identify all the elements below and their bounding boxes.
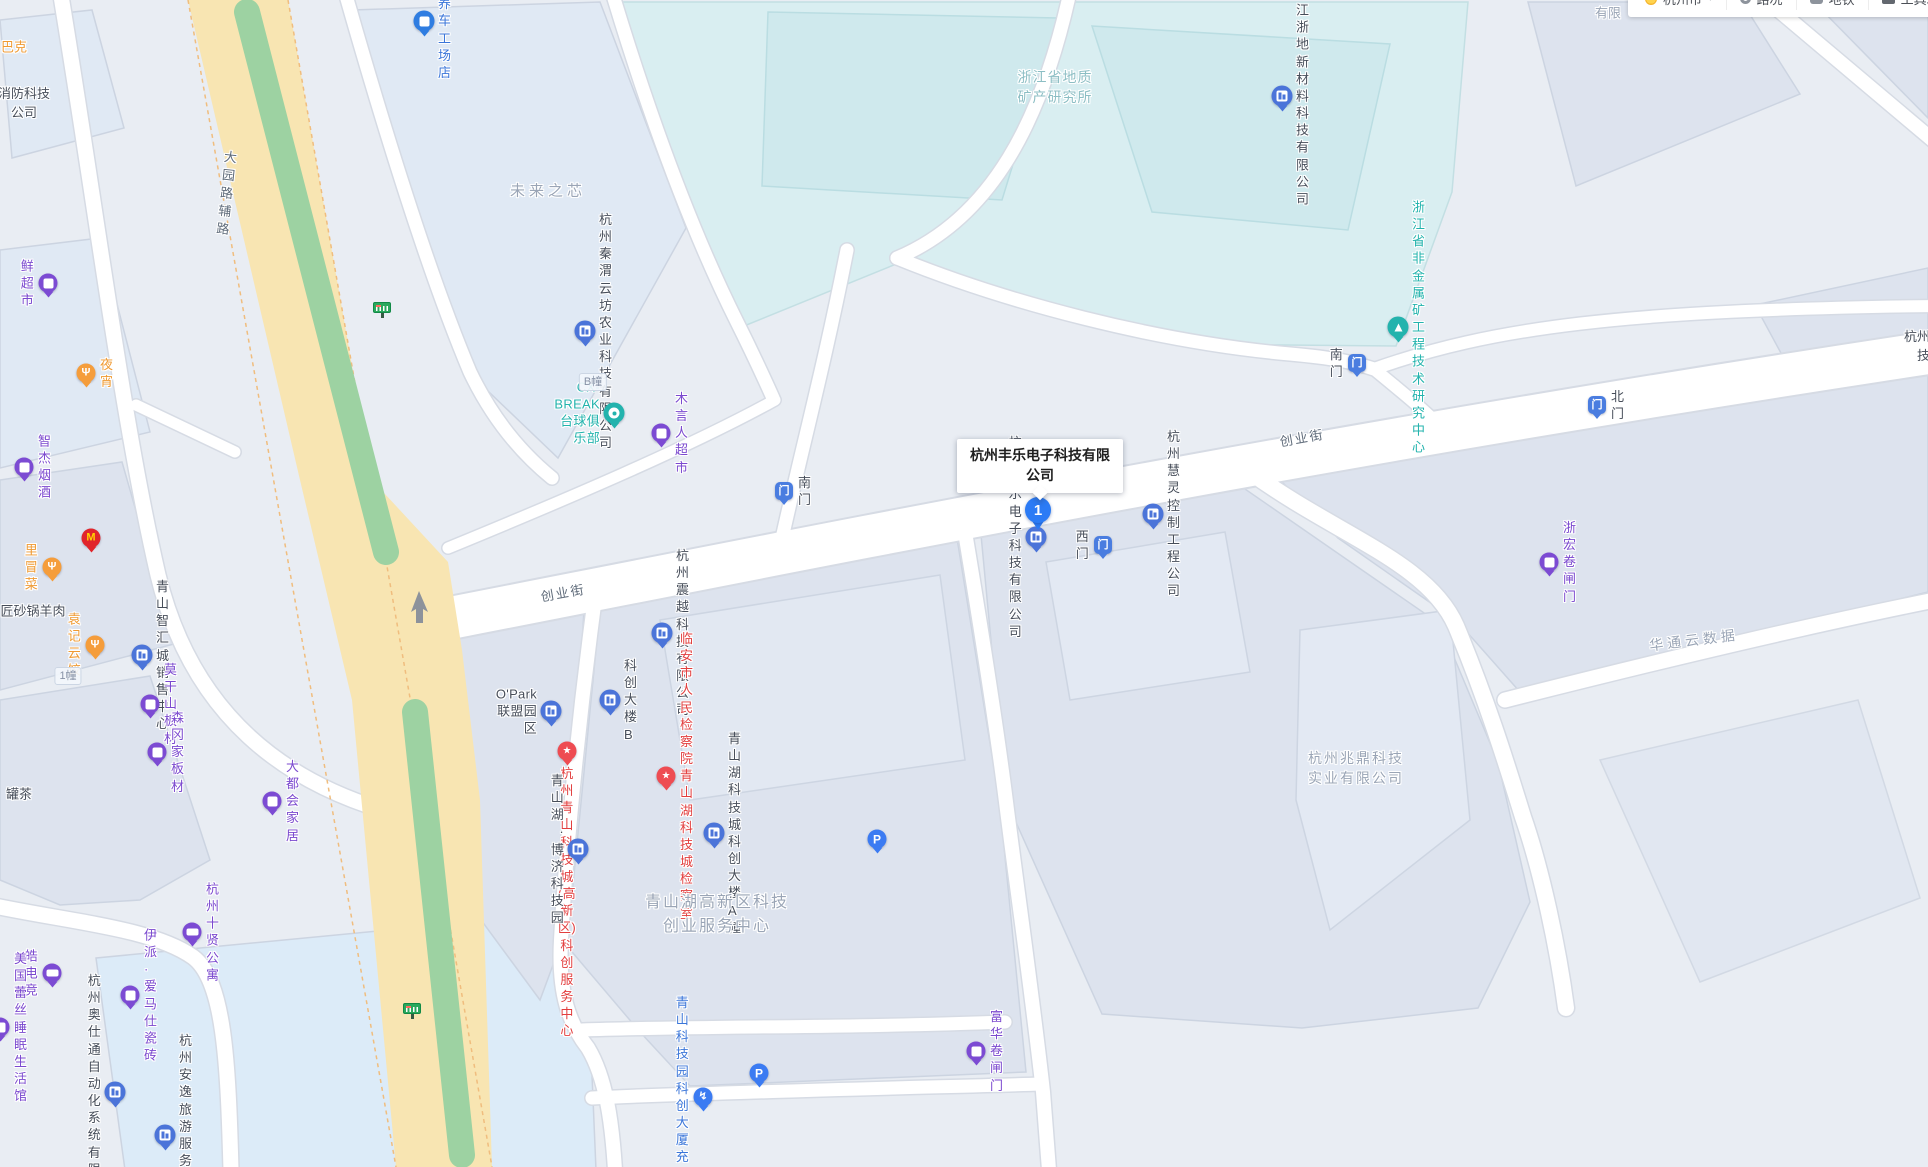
unit-label-building-b-tag: B幢 [579,373,607,391]
poi-label: 夜宵 [100,356,113,390]
area-label-xiaofang-clipped: 消防科技 公司 [0,83,50,121]
star-icon: ★ [657,767,676,786]
unit-label-building-1-tag: 1幢 [54,667,81,685]
bag-icon [263,792,282,811]
charge-icon: ↯ [694,1088,713,1107]
poi-label: 伊派·爱马仕瓷砖 [144,926,157,1063]
bag-icon [141,695,160,714]
area-label-dizhi-research-institute: 浙江省地质 矿产研究所 [1018,67,1093,107]
area-label-zhaoding-industrial: 杭州兆鼎科技 实业有限公司 [1308,748,1404,788]
bag-icon [148,743,167,762]
road-label-dayuan-road-side: 大园路辅路 [211,149,239,240]
building-icon [105,1082,126,1103]
building-icon [568,839,589,860]
poi-label: 青山科技园科创 大厦充电站 [675,994,689,1167]
city-icon [1645,0,1657,5]
building-icon [132,645,153,666]
billiard-icon [604,403,625,424]
building-icon [1143,504,1164,525]
building-icon [155,1125,176,1146]
poi-label: 科创大楼B [624,657,637,743]
area-label-qsh-startup-service-center: 青山湖高新区科技 创业服务中心 [645,888,789,936]
roll-icon [967,1042,986,1061]
city-selector[interactable]: 杭州市 ▾ [1632,0,1726,10]
poi-label: 浙江浙地新材料 科技有限公司 [1296,0,1309,208]
mcd-icon: M [82,529,101,548]
roll-icon [1540,553,1559,572]
parking-icon: P [750,1064,769,1083]
poi-label: 杭州慧灵控制 工程公司 [1167,428,1180,600]
bed-icon [183,923,202,942]
poi-label: 临安市人民检察院青 山湖科技城检察室 [680,630,693,922]
poi-label: 浙江省非金属矿 工程技术研究中心 [1412,198,1425,455]
traffic-icon [1740,0,1751,4]
poi-label: 鲜超市 [20,257,34,308]
chevron-down-icon: ▾ [1708,0,1713,4]
building-icon [600,690,621,711]
metro-toggle[interactable]: 地铁 [1796,0,1868,10]
map-canvas[interactable]: 途虎养车工场店浙江浙地新材料 科技有限公司浙江省非金属矿 工程技术研究中心门南门… [0,0,1928,1167]
food-icon: Ψ [43,558,62,577]
game-icon [43,964,62,983]
building-icon [575,321,596,342]
road-label-chuangye-street-west: 创业街 [539,579,587,606]
poi-label: 杭州十贤公寓 [206,881,219,984]
gate-icon: 门 [1348,354,1366,372]
bus-stop-icon [372,301,392,319]
smoke-icon [15,458,34,477]
area-label-bake-clipped: 巴克 [1,37,27,56]
poi-label: O'Park联盟园区 [496,685,537,736]
poi-label: 智杰烟酒 [38,433,51,502]
bus-stop-icon [402,1002,422,1020]
poi-label: 青山湖·博济 科技园 [550,772,564,926]
marker-number: 1 [1025,497,1051,523]
metro-icon [1810,0,1823,4]
toolbox-button[interactable]: 工具箱 [1868,0,1928,10]
bag-icon [0,1018,10,1037]
poi-label: 大都会家居 [286,758,299,844]
building-icon [652,623,673,644]
flask-icon [1388,317,1409,338]
poi-label: 杭州安逸旅游 服务有限公司 [179,1032,192,1167]
poi-label: 南门 [1329,346,1343,380]
poi-label: 杭州奥仕通自动化 系统有限公司 [87,972,101,1167]
poi-label: 美国蕾丝 睡眠生活馆 [14,950,27,1104]
area-label-qingyun-clipped: 杭州青云 技术有 [1826,326,1928,364]
food-icon: Ψ [77,364,96,383]
food-icon: Ψ [86,636,105,655]
star-icon: ★ [558,742,577,761]
poi-label: 木言人超市 [675,390,688,476]
bag-icon [121,986,140,1005]
poi-label: 途虎养车工场店 [438,0,451,81]
gate-icon: 门 [1588,396,1606,414]
gate-icon: 门 [1094,536,1112,554]
area-label-guancha-tea: 罐茶 [6,784,32,803]
area-label-weilai-zhixin: 未来之芯 [510,180,586,201]
poi-label: 里冒菜 [24,541,38,592]
poi-label: 浙宏卷闸门 [1563,519,1576,605]
cart-icon [652,424,671,443]
building-icon [704,823,725,844]
traffic-toggle[interactable]: 路况 [1726,0,1796,10]
poi-label: 富华卷闸门 [990,1008,1003,1094]
area-label-youxian-partial: 有限 [1595,3,1621,22]
map-toolbar: 杭州市 ▾ 路况 地铁 工具箱 [1628,0,1928,17]
building-icon [1272,86,1293,107]
area-label-huatong-cloud-data: 华通云数据 [1648,625,1740,656]
gate-icon: 门 [775,482,793,500]
poi-label: 西门 [1075,528,1089,562]
parking-icon: P [868,830,887,849]
area-label-shaguo-lamb: 匠砂锅羊肉 [0,601,65,620]
tuhu-icon [414,11,435,32]
building-icon [541,701,562,722]
toolbox-icon [1882,0,1895,4]
selected-place-tooltip[interactable]: 杭州丰乐电子科技有限 公司 [957,439,1123,493]
poi-layer: 途虎养车工场店浙江浙地新材料 科技有限公司浙江省非金属矿 工程技术研究中心门南门… [0,0,1928,1167]
poi-label: 南门 [798,474,811,508]
poi-label: 北门 [1611,388,1624,422]
poi-label: 森冈家板材 [171,709,184,795]
cart-icon [39,274,58,293]
road-label-chuangye-street-east: 创业街 [1278,424,1326,451]
